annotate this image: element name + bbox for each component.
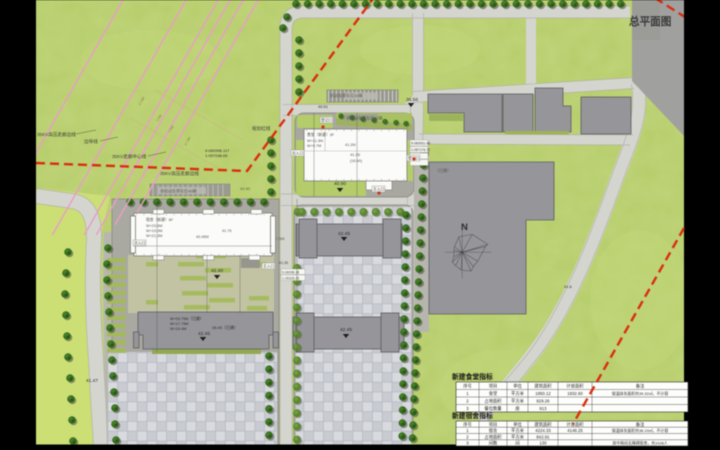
svg-text:41.35: 41.35 — [279, 261, 288, 265]
svg-text:9-060931.49: 9-060931.49 — [411, 142, 430, 146]
svg-text:保温抹灰面积共39.32㎡，不计容: 保温抹灰面积共39.32㎡，不计容 — [612, 391, 669, 396]
svg-text:1-05328.25: 1-05328.25 — [282, 277, 299, 281]
svg-text:40.90: 40.90 — [334, 181, 346, 187]
svg-text:4224.33: 4224.33 — [535, 428, 551, 433]
svg-text:41.35: 41.35 — [350, 152, 361, 157]
svg-text:登记口: 登记口 — [321, 118, 333, 123]
svg-text:913: 913 — [539, 406, 547, 411]
svg-text:7.5M: 7.5M — [276, 237, 284, 241]
svg-text:其中两间无障碍宿舍，共1028人: 其中两间无障碍宿舍，共1028人 — [612, 441, 667, 446]
svg-text:N: N — [461, 222, 468, 233]
svg-text:备注: 备注 — [636, 421, 645, 428]
svg-text:主入口: 主入口 — [373, 187, 385, 192]
svg-text:平方米: 平方米 — [511, 397, 525, 404]
svg-text:1-057038.65: 1-057038.65 — [205, 153, 228, 158]
svg-text:新建宿舍指标: 新建宿舍指标 — [452, 411, 493, 420]
svg-text:W+21.3M: W+21.3M — [146, 234, 162, 238]
svg-text:建筑面积: 建筑面积 — [534, 382, 552, 389]
svg-text:宿舍: 宿舍 — [489, 427, 498, 434]
svg-text:41.2M: 41.2M — [345, 143, 356, 147]
svg-text:42.40: 42.40 — [211, 268, 223, 274]
svg-text:41.75: 41.75 — [222, 229, 232, 233]
svg-text:W+17.75M: W+17.75M — [170, 322, 188, 326]
svg-text:间数: 间数 — [489, 440, 498, 447]
svg-text:座: 座 — [515, 405, 520, 412]
svg-text:42.45: 42.45 — [338, 231, 350, 237]
svg-text:占地面积: 占地面积 — [484, 433, 502, 440]
svg-text:占地面积: 占地面积 — [484, 397, 502, 404]
svg-text:食堂: 食堂 — [489, 390, 498, 397]
svg-text:W+19.3M: W+19.3M — [146, 229, 162, 233]
svg-text:W+23.6M: W+23.6M — [146, 224, 162, 228]
svg-text:1932.60: 1932.60 — [567, 391, 583, 396]
svg-text:(16.60): (16.60) — [350, 159, 363, 163]
svg-text:保温抹灰面积共36.10㎡，不计容: 保温抹灰面积共36.10㎡，不计容 — [612, 428, 669, 433]
svg-text:平方米: 平方米 — [511, 427, 525, 434]
svg-text:建筑面积: 建筑面积 — [534, 421, 552, 428]
svg-text:41.6: 41.6 — [564, 284, 573, 289]
svg-text:序号: 序号 — [463, 421, 472, 428]
svg-text:非机动车停车位32辆: 非机动车停车位32辆 — [346, 115, 382, 121]
svg-text:新建食堂指标: 新建食堂指标 — [452, 372, 493, 381]
svg-text:计容面积: 计容面积 — [566, 421, 584, 428]
svg-text:36.56: 36.56 — [406, 97, 418, 103]
svg-text:42.40: 42.40 — [240, 186, 251, 191]
svg-text:1-057176.72: 1-057176.72 — [411, 148, 430, 152]
svg-text:929.26: 929.26 — [536, 398, 550, 403]
svg-text:35.45（已建）: 35.45（已建） — [212, 324, 238, 330]
svg-text:35KV走廊中心线: 35KV走廊中心线 — [112, 153, 147, 160]
svg-text:W+03.75M（已建）: W+03.75M（已建） — [170, 316, 204, 321]
svg-text:主入口: 主入口 — [263, 264, 275, 269]
svg-text:规划红线: 规划红线 — [252, 125, 271, 132]
svg-text:次入口: 次入口 — [134, 241, 146, 246]
svg-text:9-06098.38: 9-06098.38 — [282, 271, 299, 275]
svg-text:41.47: 41.47 — [86, 378, 98, 384]
svg-text:总平面图: 总平面图 — [629, 15, 671, 28]
svg-text:备注: 备注 — [636, 382, 645, 389]
svg-text:42.45: 42.45 — [340, 327, 352, 333]
svg-text:餐位数量: 餐位数量 — [484, 405, 502, 412]
svg-text:（已建）: （已建） — [435, 167, 451, 173]
svg-text:计容面积: 计容面积 — [566, 382, 584, 389]
svg-text:非机动车停车位40辆: 非机动车停车位40辆 — [160, 188, 196, 194]
svg-text:出入口: 出入口 — [292, 151, 304, 156]
svg-text:机动车停车位33辆: 机动车停车位33辆 — [330, 92, 362, 98]
svg-text:W+11.3M: W+11.3M — [307, 139, 323, 143]
svg-text:单位: 单位 — [513, 382, 522, 389]
svg-text:序号: 序号 — [463, 382, 472, 389]
svg-text:40.91: 40.91 — [318, 104, 329, 109]
svg-text:4148.25: 4148.25 — [567, 428, 583, 433]
svg-text:35KV高压走廊边线: 35KV高压走廊边线 — [160, 170, 199, 177]
svg-text:35KV高压走廊边线: 35KV高压走廊边线 — [37, 131, 76, 138]
svg-text:间: 间 — [515, 440, 519, 447]
svg-text:40.45M: 40.45M — [196, 235, 209, 239]
svg-text:W+19.4M: W+19.4M — [170, 327, 186, 331]
svg-text:平方米: 平方米 — [511, 433, 525, 440]
svg-text:1950.12: 1950.12 — [535, 391, 551, 396]
svg-text:130: 130 — [539, 441, 547, 446]
svg-text:842.91: 842.91 — [536, 434, 550, 439]
svg-text:食堂（新建）3F: 食堂（新建）3F — [307, 132, 335, 137]
svg-text:单位: 单位 — [513, 421, 522, 428]
svg-text:平方米: 平方米 — [511, 390, 525, 397]
svg-text:42.45: 42.45 — [198, 331, 210, 337]
svg-text:宿舍（新建）6F: 宿舍（新建）6F — [146, 217, 174, 222]
svg-text:边导线: 边导线 — [84, 138, 98, 145]
